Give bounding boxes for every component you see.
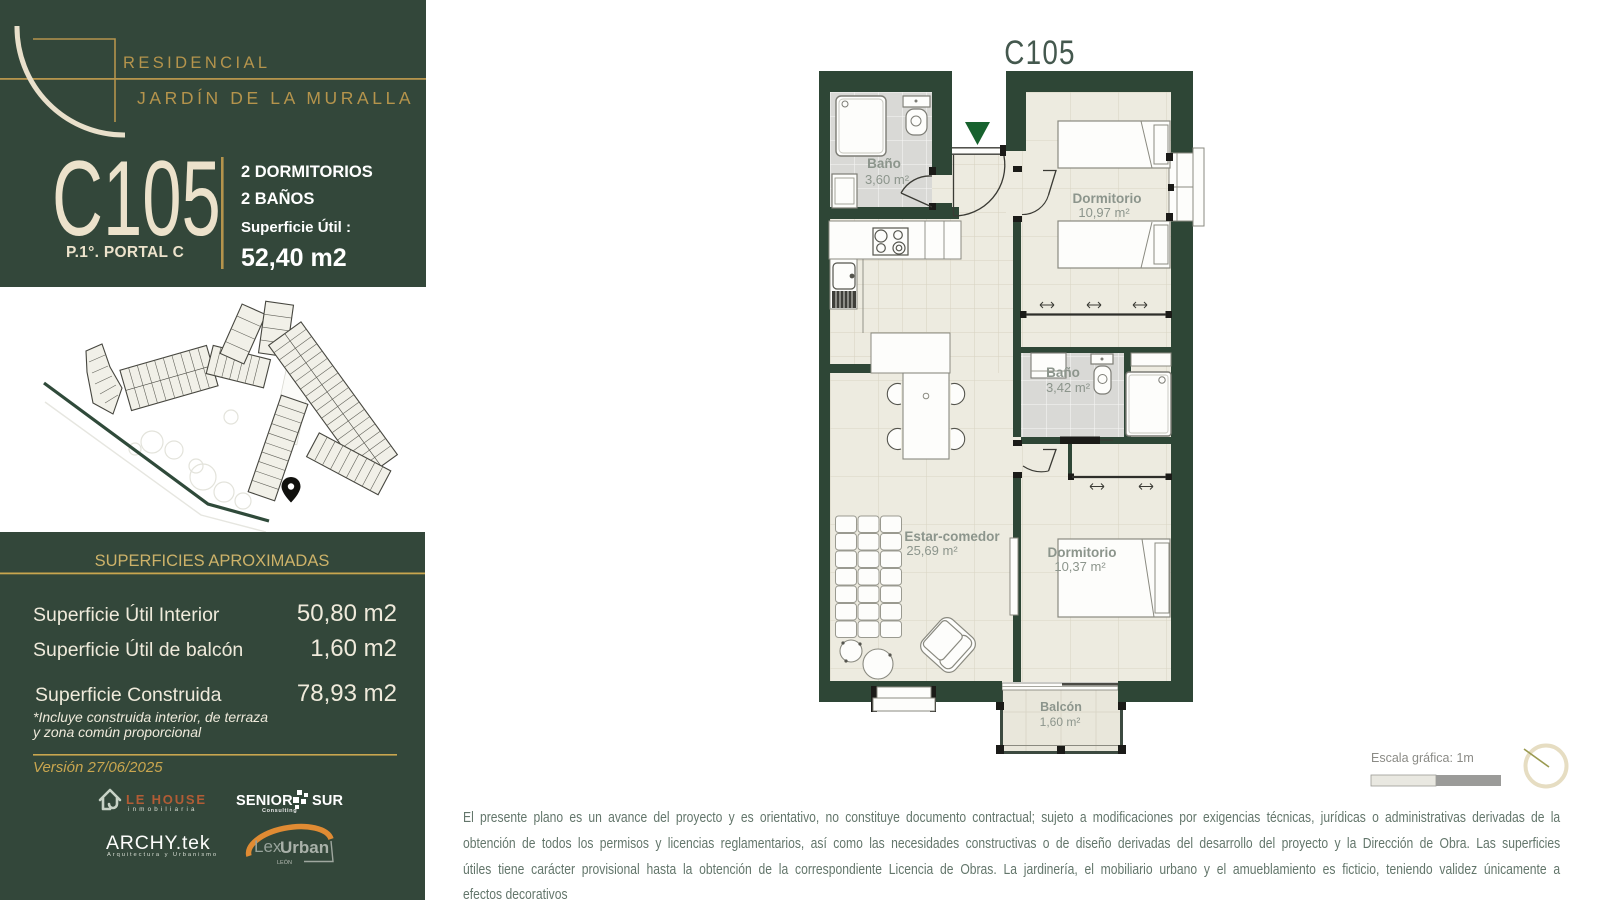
svg-text:inmobiliaria: inmobiliaria [128,806,198,813]
svg-text:y zona común proporcional: y zona común proporcional [32,724,202,740]
svg-text:2 BAÑOS: 2 BAÑOS [241,188,314,208]
svg-text:Dormitorio: Dormitorio [1073,191,1142,206]
svg-text:Baño: Baño [1046,365,1080,380]
svg-text:P.1°. PORTAL C: P.1°. PORTAL C [66,244,184,261]
svg-text:Urban: Urban [280,838,329,857]
svg-text:2 DORMITORIOS: 2 DORMITORIOS [241,163,373,181]
svg-text:Superficie Útil de balcón: Superficie Útil de balcón [33,638,243,661]
svg-text:C105: C105 [1004,33,1076,71]
svg-text:Consulting: Consulting [262,808,297,814]
svg-text:78,93 m2: 78,93 m2 [297,680,397,707]
svg-text:*Incluye construida interior,: *Incluye construida interior, de terraza [33,709,268,725]
svg-text:3,60 m²: 3,60 m² [865,172,910,187]
svg-text:Balcón: Balcón [1040,700,1082,714]
svg-text:Superficie Útil Interior: Superficie Útil Interior [33,603,220,626]
svg-text:Dormitorio: Dormitorio [1048,545,1117,560]
svg-text:25,69 m²: 25,69 m² [906,543,958,558]
svg-text:10,37 m²: 10,37 m² [1054,559,1106,574]
svg-text:LE HOUSE: LE HOUSE [126,792,207,807]
svg-text:50,80 m2: 50,80 m2 [297,600,397,627]
svg-text:Versión 27/06/2025: Versión 27/06/2025 [33,759,163,776]
svg-text:ARCHY.tek: ARCHY.tek [106,832,210,854]
svg-text:Lex: Lex [254,837,282,856]
svg-text:SENIOR: SENIOR [236,793,293,809]
svg-text:RESIDENCIAL: RESIDENCIAL [123,54,270,72]
svg-text:SUPERFICIES APROXIMADAS: SUPERFICIES APROXIMADAS [95,552,330,570]
svg-text:C105: C105 [52,139,221,258]
svg-text:Escala gráfica: 1m: Escala gráfica: 1m [1371,751,1474,765]
svg-text:LEÓN: LEÓN [277,859,292,866]
svg-text:3,42 m²: 3,42 m² [1046,380,1091,395]
svg-text:Estar-comedor: Estar-comedor [904,529,1000,544]
svg-text:Baño: Baño [867,156,901,171]
svg-text:Arquitectura y Urbanismo: Arquitectura y Urbanismo [107,852,218,858]
svg-text:SUR: SUR [312,793,344,809]
svg-text:JARDÍN DE LA MURALLA: JARDÍN DE LA MURALLA [137,88,414,108]
svg-text:1,60 m²: 1,60 m² [1040,715,1081,729]
svg-text:52,40 m2: 52,40 m2 [241,244,347,272]
svg-text:Superficie Construida: Superficie Construida [35,684,222,706]
svg-text:1,60 m2: 1,60 m2 [310,635,397,662]
svg-text:Superficie Útil :: Superficie Útil : [241,218,351,236]
svg-text:10,97 m²: 10,97 m² [1078,205,1130,220]
